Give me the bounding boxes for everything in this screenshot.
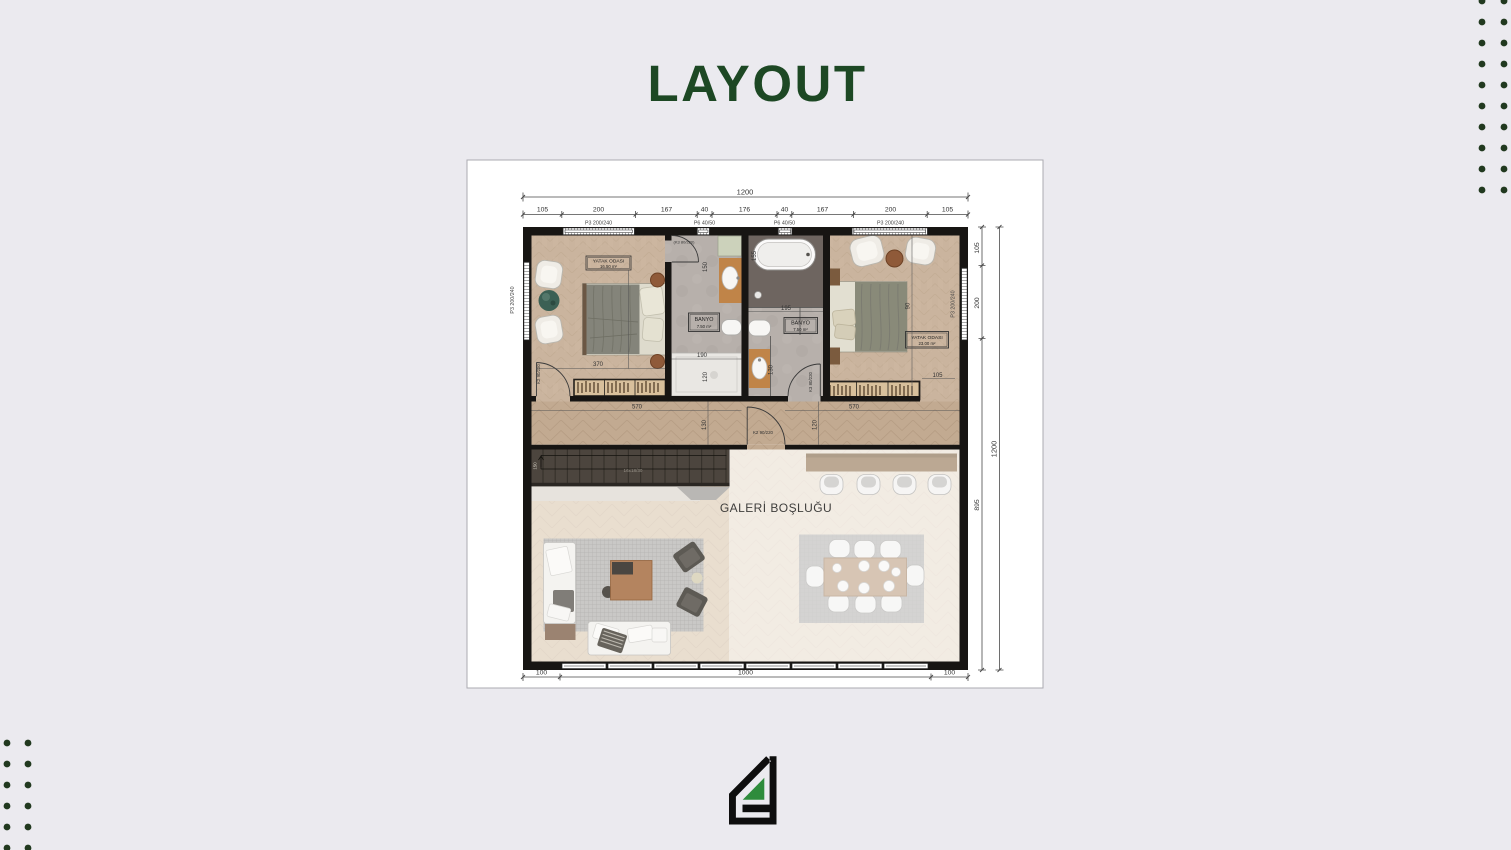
svg-text:1200: 1200 — [737, 188, 754, 197]
svg-text:7.50 m²: 7.50 m² — [793, 327, 808, 332]
svg-text:90: 90 — [906, 302, 912, 309]
svg-text:P3 200/240: P3 200/240 — [877, 221, 904, 227]
svg-text:23.00 m²: 23.00 m² — [919, 341, 937, 346]
svg-text:(K3 80/220): (K3 80/220) — [674, 240, 696, 245]
svg-text:P3 200/240: P3 200/240 — [510, 286, 516, 313]
svg-text:895: 895 — [974, 499, 981, 511]
svg-text:176: 176 — [739, 207, 751, 214]
svg-text:120: 120 — [813, 419, 819, 430]
svg-text:167: 167 — [817, 207, 829, 214]
svg-text:130: 130 — [702, 419, 708, 430]
svg-text:40: 40 — [701, 207, 709, 214]
svg-text:150: 150 — [703, 261, 709, 272]
svg-text:105: 105 — [974, 242, 981, 254]
svg-text:GALERİ BOŞLUĞU: GALERİ BOŞLUĞU — [720, 500, 832, 515]
svg-text:105: 105 — [537, 207, 549, 214]
svg-text:190: 190 — [697, 353, 708, 359]
svg-text:100: 100 — [536, 670, 548, 677]
svg-text:150: 150 — [533, 462, 538, 470]
svg-text:370: 370 — [593, 362, 604, 368]
svg-text:200: 200 — [593, 207, 605, 214]
svg-text:40: 40 — [781, 207, 789, 214]
svg-text:BANYO: BANYO — [791, 321, 810, 327]
svg-text:167: 167 — [661, 207, 673, 214]
svg-text:200: 200 — [885, 207, 897, 214]
svg-text:K3 80/220: K3 80/220 — [808, 371, 813, 392]
svg-text:100: 100 — [944, 670, 956, 677]
svg-text:P6 40/50: P6 40/50 — [774, 221, 795, 227]
svg-text:16.50 m²: 16.50 m² — [600, 264, 618, 269]
svg-text:7.50 m²: 7.50 m² — [697, 324, 712, 329]
svg-text:570: 570 — [849, 405, 860, 411]
svg-text:1200: 1200 — [990, 441, 999, 458]
svg-text:195: 195 — [781, 306, 792, 312]
svg-text:16x18/30: 16x18/30 — [624, 468, 643, 473]
svg-text:P6 40/50: P6 40/50 — [694, 221, 715, 227]
svg-text:105: 105 — [932, 373, 943, 379]
svg-text:570: 570 — [632, 405, 643, 411]
svg-text:BANYO: BANYO — [695, 317, 714, 323]
svg-text:K2 90/220: K2 90/220 — [536, 363, 541, 384]
svg-text:1000: 1000 — [738, 670, 753, 677]
svg-text:200: 200 — [974, 297, 981, 309]
svg-text:130: 130 — [769, 364, 775, 375]
svg-text:P3 200/240: P3 200/240 — [951, 290, 957, 317]
svg-text:K2 90/220: K2 90/220 — [753, 430, 774, 435]
svg-text:120: 120 — [703, 371, 709, 382]
svg-text:P3 200/240: P3 200/240 — [585, 221, 612, 227]
svg-text:105: 105 — [942, 207, 954, 214]
svg-text:155: 155 — [752, 250, 758, 261]
